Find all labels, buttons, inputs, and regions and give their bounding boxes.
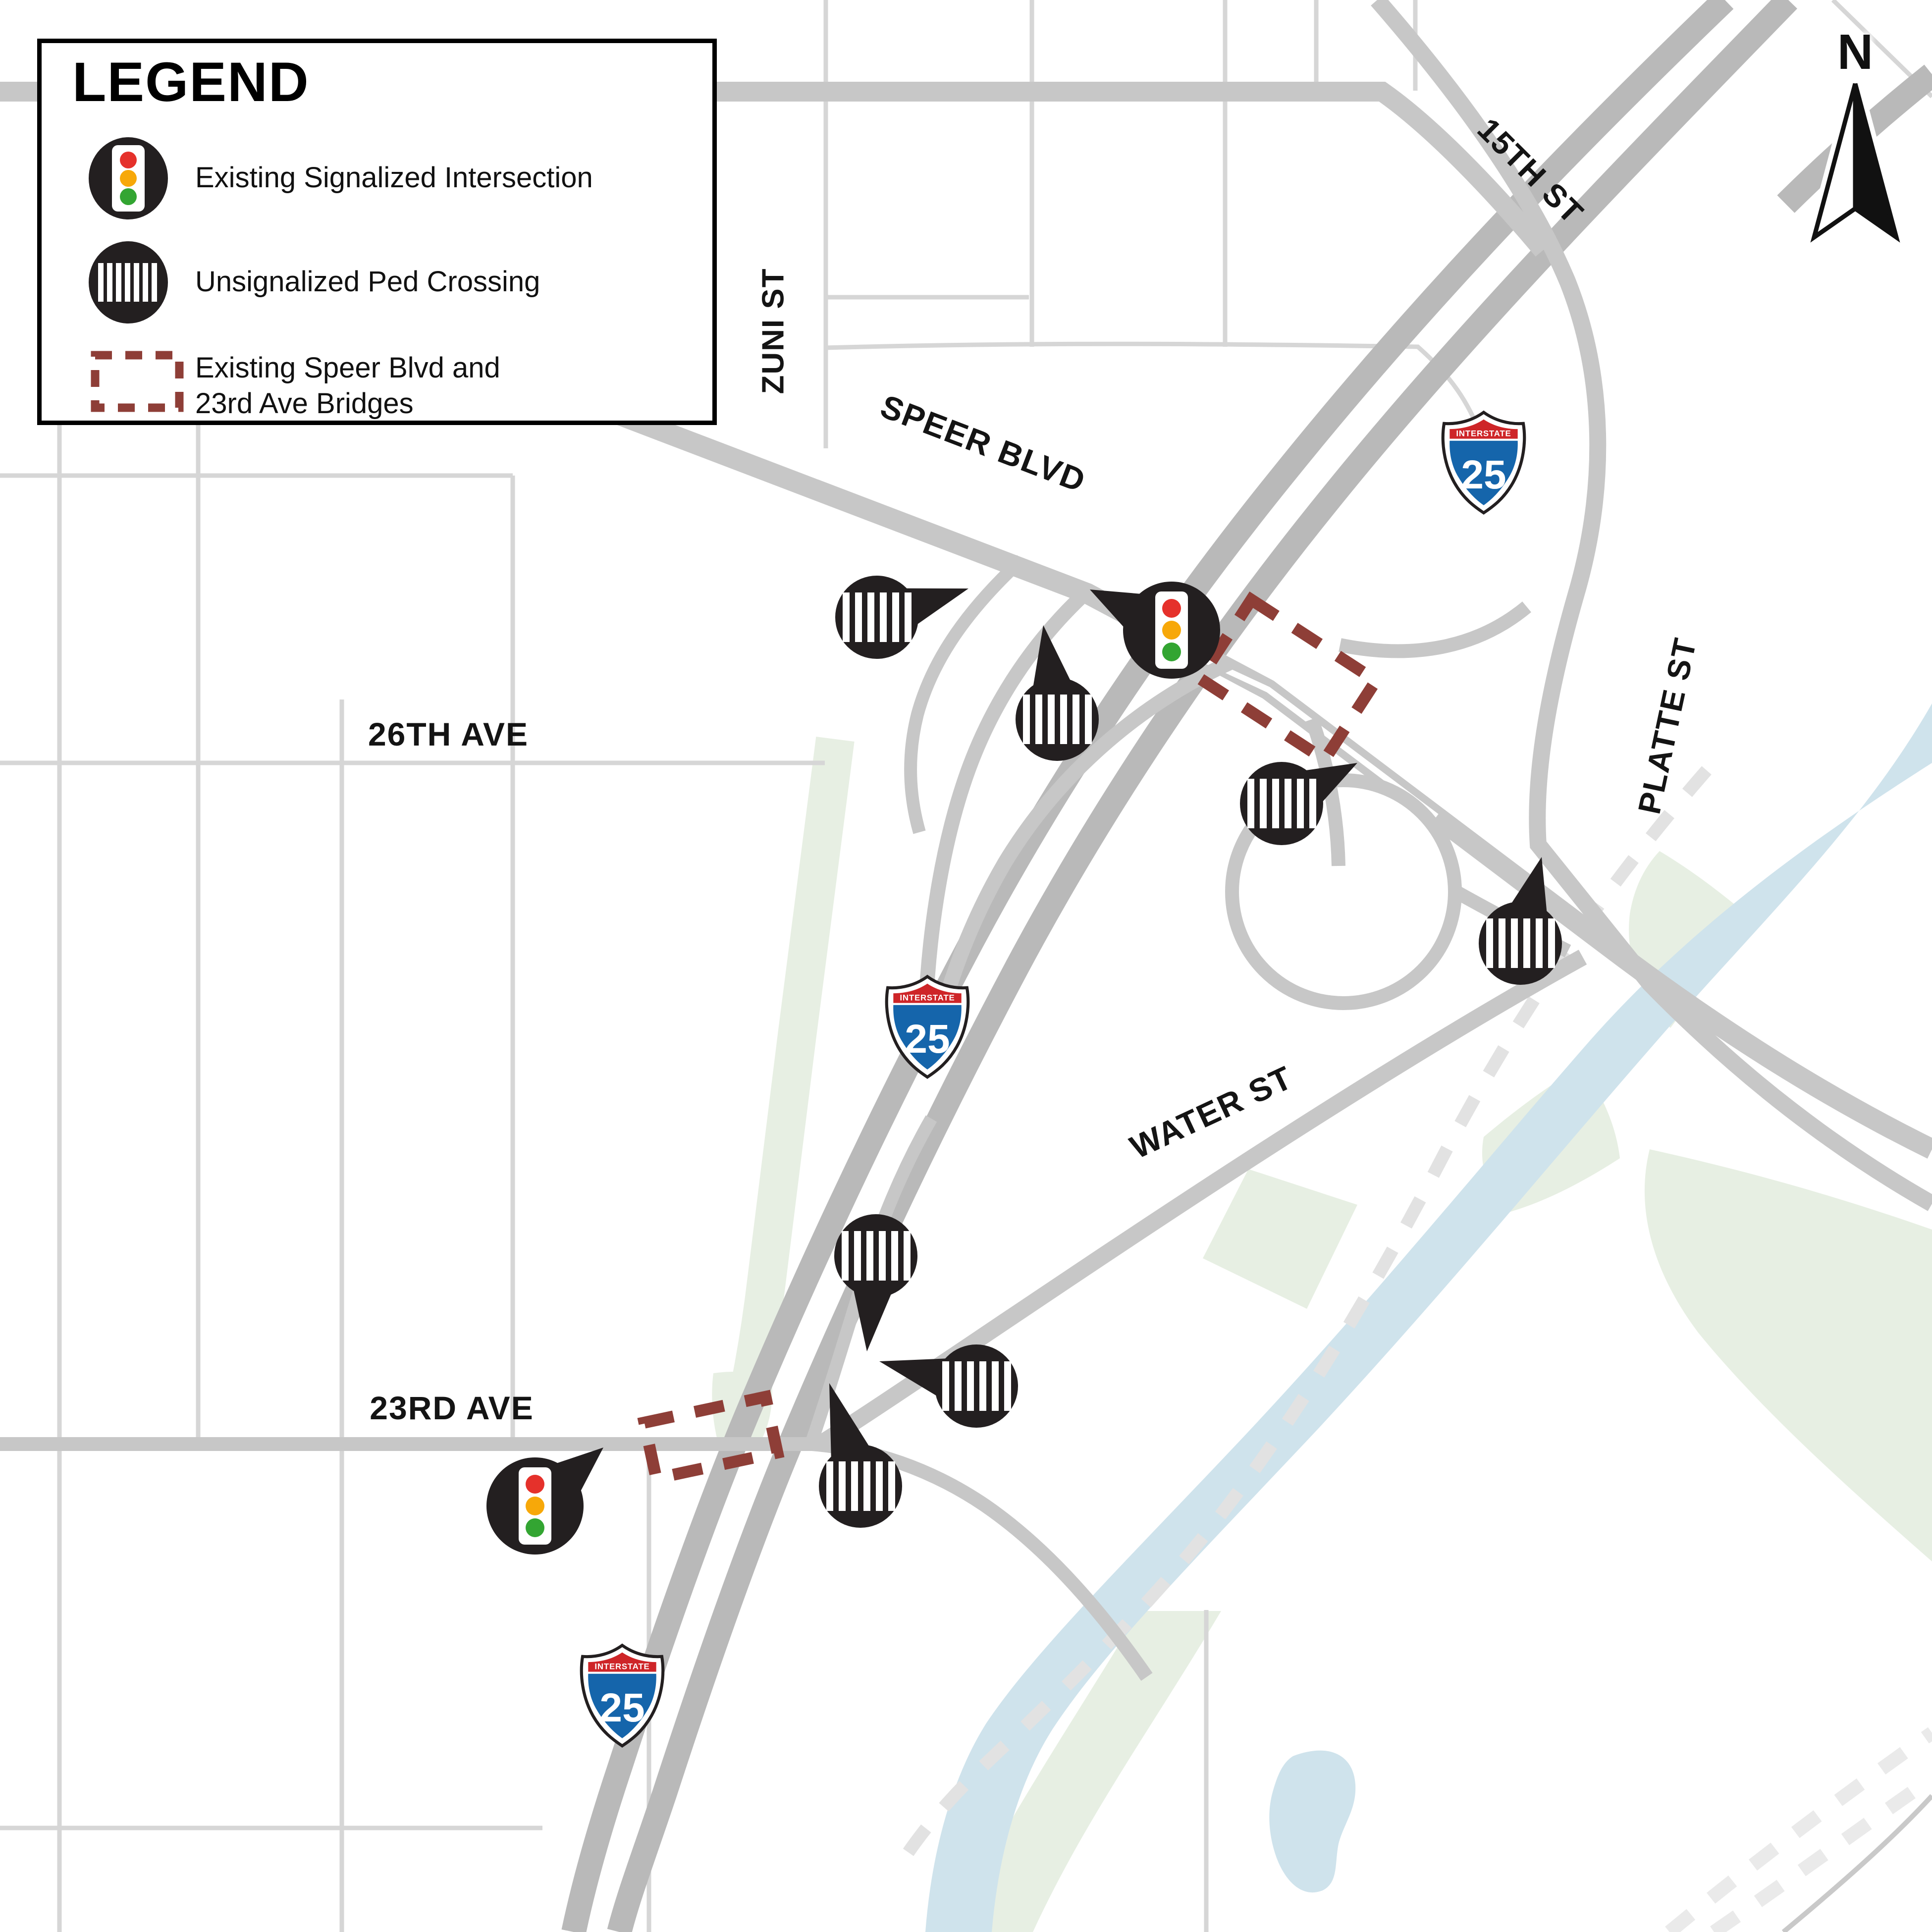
road-speer-blvd <box>542 385 1932 1149</box>
ped-crossing-icon <box>87 240 169 324</box>
compass: N <box>1803 24 1907 244</box>
street-label-23rd-ave: 23RD AVE <box>370 1390 534 1426</box>
interstate-25-shield: INTERSTATE25 <box>1443 412 1524 513</box>
pond <box>1269 1751 1355 1893</box>
bridge-outline-icon <box>90 350 184 413</box>
north-arrow-icon <box>1808 81 1902 244</box>
project-map: 15TH STZUNI STSPEER BLVD26TH AVEPLATTE S… <box>0 0 1932 1932</box>
traffic-signal-icon <box>87 136 169 220</box>
legend-item-bridges-line2: 23rd Ave Bridges <box>195 387 414 420</box>
shield-top-text: INTERSTATE <box>594 1662 649 1671</box>
signalized-intersection-marker <box>486 1448 603 1555</box>
north-label: N <box>1803 24 1907 81</box>
legend-item-signalized: Existing Signalized Intersection <box>195 161 593 194</box>
legend-item-ped-crossing: Unsignalized Ped Crossing <box>195 265 540 298</box>
legend-title: LEGEND <box>72 50 310 114</box>
shield-route-number: 25 <box>905 1017 950 1062</box>
shield-top-text: INTERSTATE <box>1456 429 1511 438</box>
ramp-ne-of-bridge <box>1340 607 1527 651</box>
street-label-speer-blvd: SPEER BLVD <box>876 387 1091 499</box>
legend-item-bridges-line1: Existing Speer Blvd and <box>195 351 500 384</box>
street-label-26th-ave: 26TH AVE <box>368 716 529 752</box>
signalized-intersection-marker <box>1090 582 1220 679</box>
shield-top-text: INTERSTATE <box>900 993 955 1002</box>
shield-route-number: 25 <box>599 1685 644 1730</box>
legend: LEGEND Existing Signalized Intersection … <box>37 39 717 425</box>
shield-route-number: 25 <box>1461 452 1506 497</box>
street-label-zuni-st: ZUNI ST <box>756 268 791 394</box>
